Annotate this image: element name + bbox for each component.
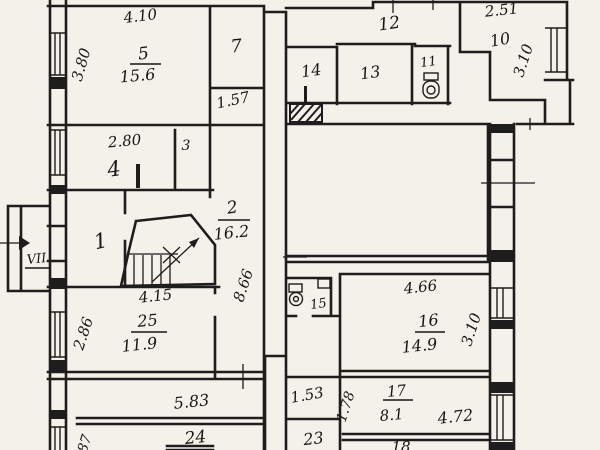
room-16-area: 14.9 (401, 334, 438, 357)
dimension-room25-width: 4.15 (137, 285, 173, 306)
dimension-room17-width: 4.72 (436, 405, 474, 428)
room-15-number: 15 (309, 296, 327, 313)
outer-and-inner-walls (8, 0, 573, 450)
room-5-area: 15.6 (119, 65, 156, 87)
room-2-area: 16.2 (213, 221, 250, 244)
floor-plan-page: 4.10 5 15.6 3.80 7 1.57 2.80 3 4 12 2.51… (0, 0, 600, 450)
hatched-wall-block (290, 104, 322, 122)
dimension-left-room5: 3.80 (68, 46, 95, 84)
room-11-number: 11 (419, 54, 437, 71)
room-23-number: 23 (301, 428, 324, 449)
dimension-room10-depth: 3.10 (510, 41, 538, 79)
dimension-room16-depth: 3.10 (458, 310, 486, 348)
entrance-arrow (0, 236, 30, 250)
room-12-number: 12 (377, 13, 401, 36)
room-25-number: 25 (136, 310, 159, 331)
room-1-number: 1 (92, 228, 110, 254)
dimension-room25-left: 2.86 (69, 314, 97, 353)
room-13-number: 13 (359, 62, 382, 84)
dimension-room4-width: 2.80 (106, 131, 142, 152)
toilet-icon-room11 (423, 73, 439, 98)
room-24-number: 24 (183, 427, 208, 449)
room-5-number: 5 (137, 44, 150, 65)
room-7-number: 7 (230, 35, 244, 57)
dimension-corridor-length: 5.83 (173, 390, 210, 413)
room-25-area: 11.9 (121, 333, 158, 356)
room-18-number: 18 (391, 438, 410, 450)
room-17-area: 8.1 (379, 405, 404, 425)
room-10-number: 10 (488, 28, 511, 50)
room-4-number: 4 (105, 156, 123, 182)
dimension-room10-width: 2.51 (483, 0, 519, 21)
room-17-number: 17 (386, 381, 407, 401)
staircase (121, 215, 215, 286)
room-16-number: 16 (417, 310, 439, 331)
door-leaf-room14 (304, 86, 307, 103)
dimension-hall-length: 8.66 (230, 266, 258, 304)
dimension-corridor23: 1.53 (289, 383, 325, 407)
sink-icon-room15 (318, 279, 330, 288)
dimension-below-room7: 1.57 (215, 88, 252, 113)
room-2-number: 2 (225, 197, 239, 218)
dimension-room16-width: 4.66 (402, 276, 439, 298)
floor-plan-drawing: 4.10 5 15.6 3.80 7 1.57 2.80 3 4 12 2.51… (0, 0, 600, 450)
dimension-left-bottom-partial: 87 (75, 433, 96, 450)
labels-layer: 4.10 5 15.6 3.80 7 1.57 2.80 3 4 12 2.51… (26, 0, 537, 450)
dimension-room17-left: 1.78 (334, 389, 359, 424)
room-14-number: 14 (300, 60, 323, 82)
entrance-label: VII (26, 251, 48, 268)
room-3-number: 3 (182, 138, 191, 154)
dimension-top-room5: 4.10 (122, 5, 159, 27)
door-leaf-room4 (136, 164, 140, 188)
